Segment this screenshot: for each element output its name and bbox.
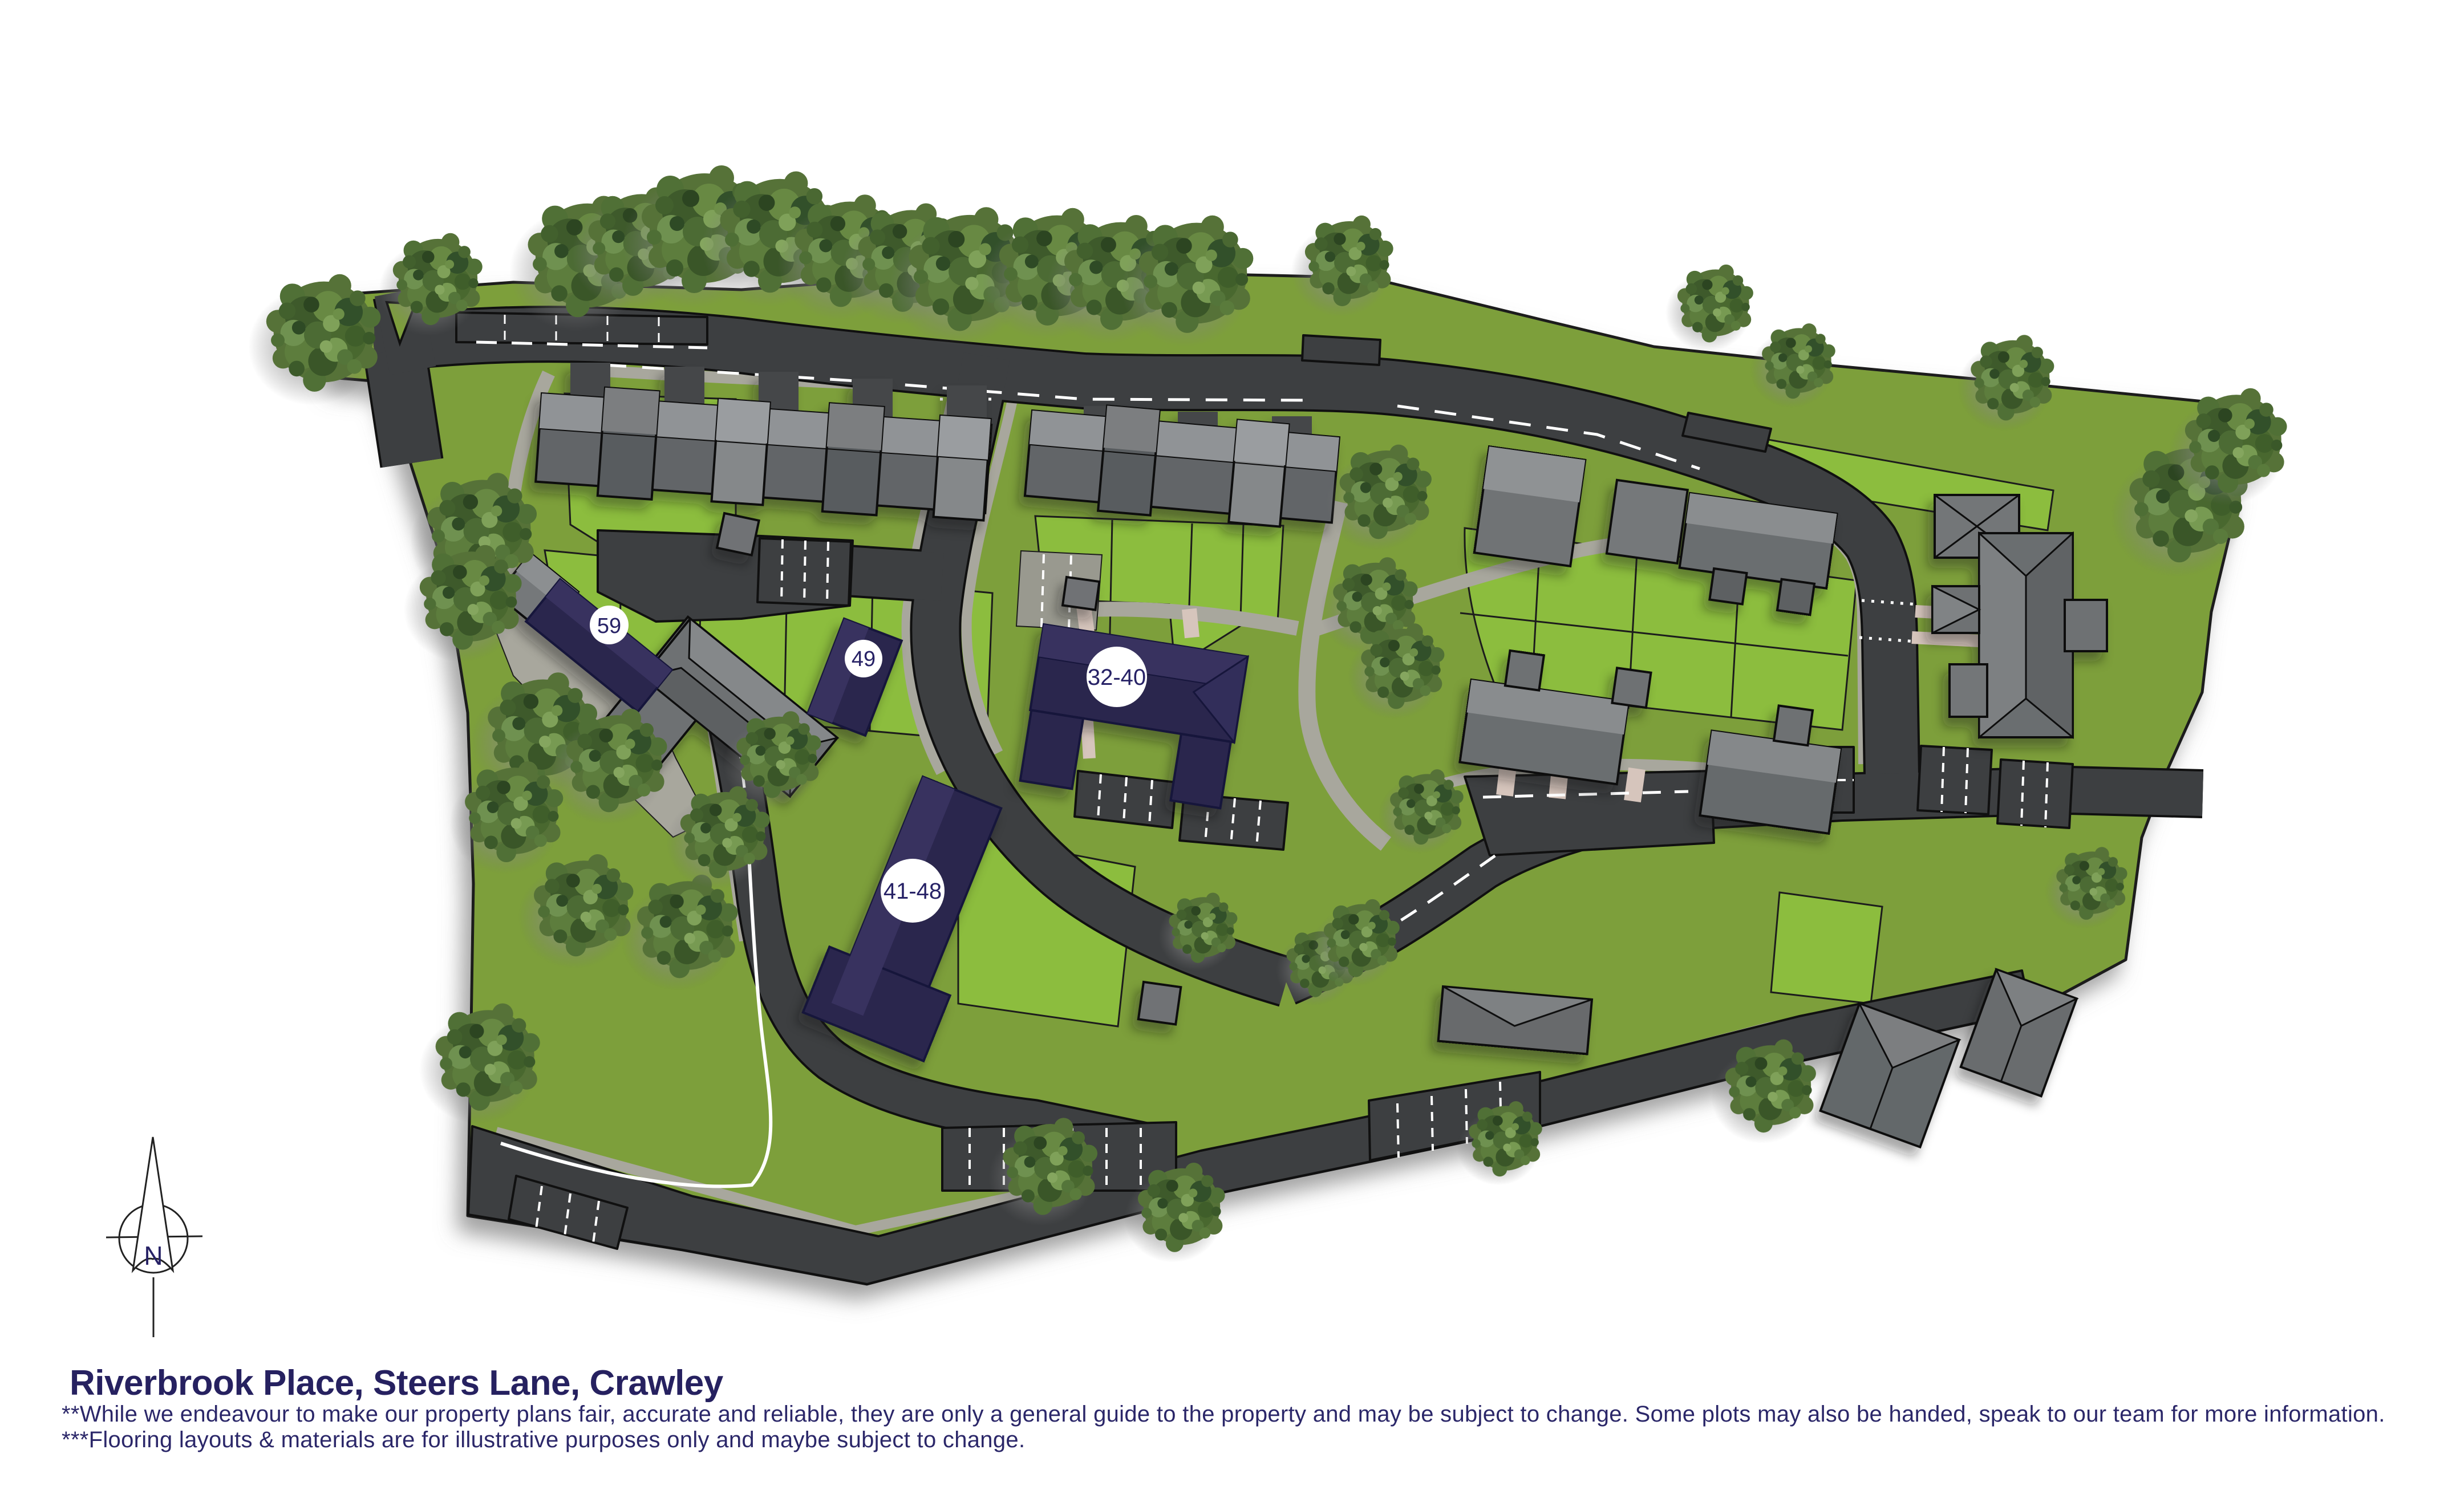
svg-text:Riverbrook Place, Steers Lane,: Riverbrook Place, Steers Lane, Crawley [70,1363,724,1403]
svg-text:41-48: 41-48 [884,879,942,904]
svg-text:***Flooring layouts & material: ***Flooring layouts & materials are for … [62,1427,1025,1452]
svg-text:59: 59 [597,614,621,638]
svg-text:49: 49 [852,647,876,671]
svg-text:N: N [144,1241,163,1270]
svg-text:32-40: 32-40 [1088,665,1146,690]
svg-text:**While we endeavour to make o: **While we endeavour to make our propert… [62,1402,2385,1427]
